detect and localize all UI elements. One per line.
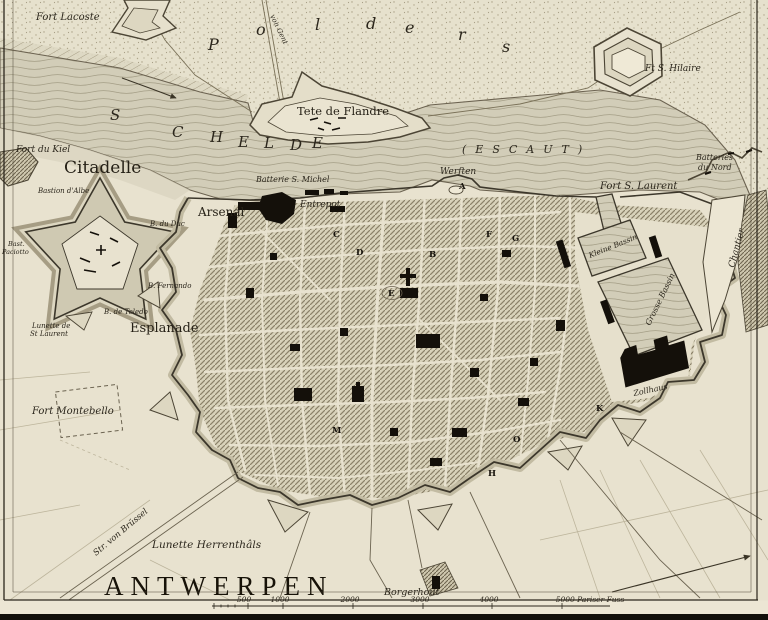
entrepot-label: Entrepot [299,200,341,210]
polders-letter: r [458,25,467,44]
fort-du-kiel-label: Fort du Kiel [15,145,70,155]
fort-s-laurent-label: Fort S. Laurent [599,181,678,192]
lunette-st-laurent-label-l2: St Laurent [30,330,68,338]
b-fernando-label: B. Fernando [147,282,191,290]
arsenal-label: Arsenal [197,205,245,219]
polders-letter: l [315,15,320,34]
schelde-letter: L [263,134,274,152]
fort-lacoste-label: Fort Lacoste [35,12,100,23]
batteries-du-nord-label-l1: Batteries [695,153,733,162]
polders-letter: d [366,14,376,33]
fort-hilaire-label: Ft S. Hilaire [644,64,701,74]
block-letter-f: F [486,230,492,240]
scale-tick-4000: 4000 [478,595,498,604]
polders-letter: o [256,20,266,39]
block-letter-o: O [513,435,521,445]
scale-tick-3000: 3000 [410,595,429,604]
tete-de-flandre-label: Tete de Flandre [297,104,389,118]
bottom-black-band [0,614,768,620]
batterie-s-michel-label: Batterie S. Michel [255,175,330,184]
paciotto-label-l2: Paciotto [1,248,29,256]
bastion-albe-label: Bastion d'Albe [37,187,89,195]
block-letter-c: C [333,230,340,240]
batteries-du-nord-label-l2: du Nord [698,163,732,172]
citadelle-label: Citadelle [64,158,141,178]
block-letter-m: M [332,426,342,436]
schelde-letter: S [110,106,120,124]
b-de-toledo-label: B. de Toledo [103,308,148,316]
map-canvas: P o l d e r s S C H E L D E (ESCAUT) For… [0,0,768,620]
schelde-letter: E [237,133,249,151]
schelde-letter: D [289,136,302,154]
esplanade-label: Esplanade [130,321,199,336]
polders-letter: s [502,37,510,56]
block-letter-h: H [488,469,496,479]
scale-tick-2000: 2000 [339,595,359,604]
lunette-herrenthals-label: Lunette Herrenthâls [151,539,262,551]
block-letter-d: D [356,248,364,258]
werften-label: Werften [440,167,476,177]
scale-tick-500: 500 [237,595,252,604]
lunette-st-laurent-label-l1: Lunette de [31,322,70,330]
fort-montebello-label: Fort Montebello [31,406,114,417]
block-letter-g: G [512,234,519,244]
antique-map-of-antwerp: P o l d e r s S C H E L D E (ESCAUT) For… [0,0,768,620]
map-title: ANTWERPEN [104,571,333,601]
schelde-letter: E [311,134,323,152]
scale-unit-label: 5000 Pariser Fuss [556,595,625,604]
b-du-duc-label: B. du Duc [149,220,185,228]
block-letter-e: E [388,289,395,299]
scale-tick-1000: 1000 [270,595,289,604]
paciotto-label-l1: Bast. [7,240,25,248]
polders-letter: P [207,35,219,54]
polders-letter: e [405,18,414,37]
block-letter-a: A [458,182,466,192]
block-letter-k: K [596,404,604,414]
bottom-margin [0,601,768,615]
escaut-label: (ESCAUT) [462,143,591,156]
block-letter-b: B [429,250,436,260]
schelde-letter: C [172,123,184,141]
schelde-letter: H [209,128,224,146]
